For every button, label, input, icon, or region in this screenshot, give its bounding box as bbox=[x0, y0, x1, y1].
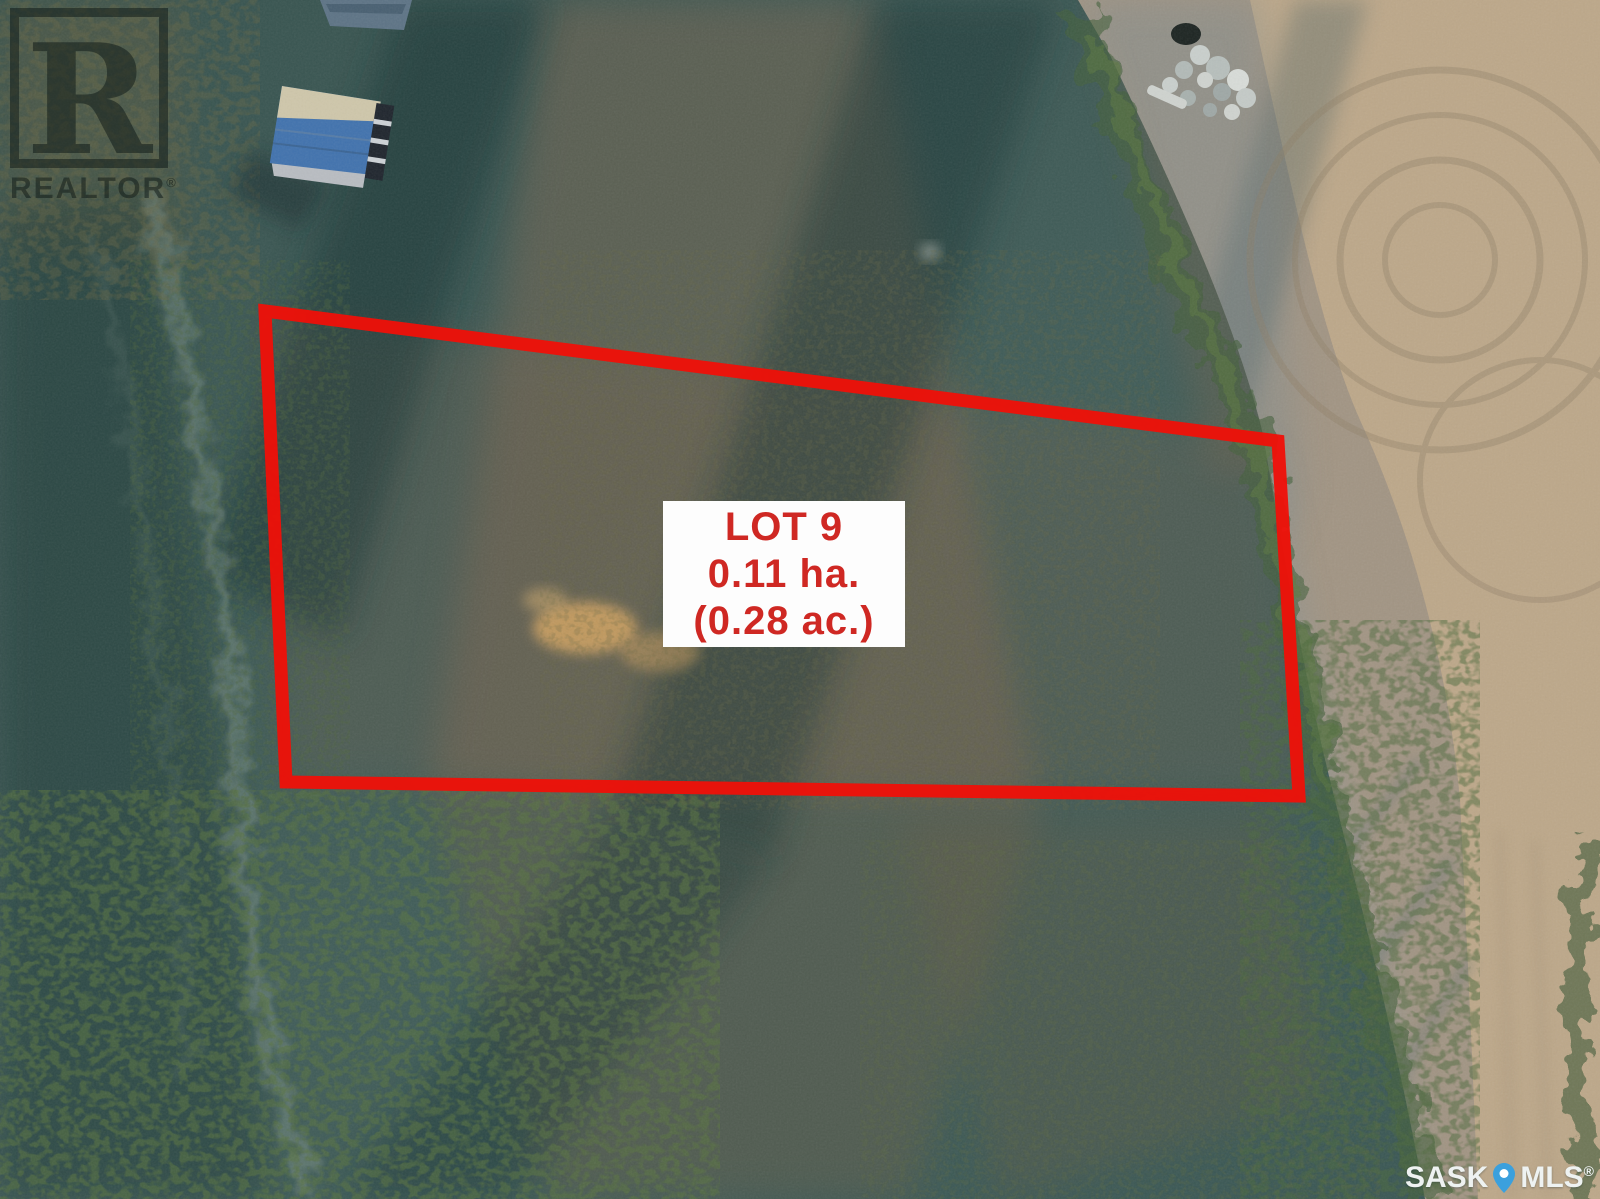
realtor-logo-icon: R bbox=[10, 8, 168, 168]
sask-mls-watermark: SASK MLS® bbox=[1405, 1161, 1594, 1195]
map-pin-icon bbox=[1493, 1163, 1515, 1193]
lot-area-acres: (0.28 ac.) bbox=[693, 598, 874, 645]
lot-area-hectares: 0.11 ha. bbox=[708, 551, 861, 598]
realtor-wordmark: REALTOR® bbox=[10, 172, 178, 206]
realtor-watermark: R REALTOR® bbox=[10, 8, 178, 206]
realtor-logo-letter: R bbox=[26, 33, 152, 167]
listing-photo-stage: LOT 9 0.11 ha. (0.28 ac.) R REALTOR® SAS… bbox=[0, 0, 1600, 1199]
lot-number: LOT 9 bbox=[725, 504, 843, 551]
mls-text-mls: MLS® bbox=[1520, 1161, 1594, 1195]
lot-info-label: LOT 9 0.11 ha. (0.28 ac.) bbox=[663, 501, 905, 647]
mls-text-sask: SASK bbox=[1405, 1161, 1488, 1195]
